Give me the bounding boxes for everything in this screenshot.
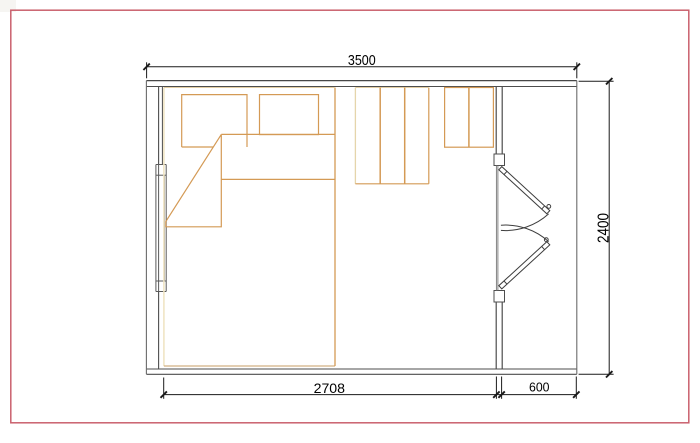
svg-text:2400: 2400	[595, 213, 612, 243]
svg-text:600: 600	[529, 380, 550, 395]
svg-text:3500: 3500	[348, 53, 376, 69]
svg-text:2708: 2708	[314, 381, 346, 397]
